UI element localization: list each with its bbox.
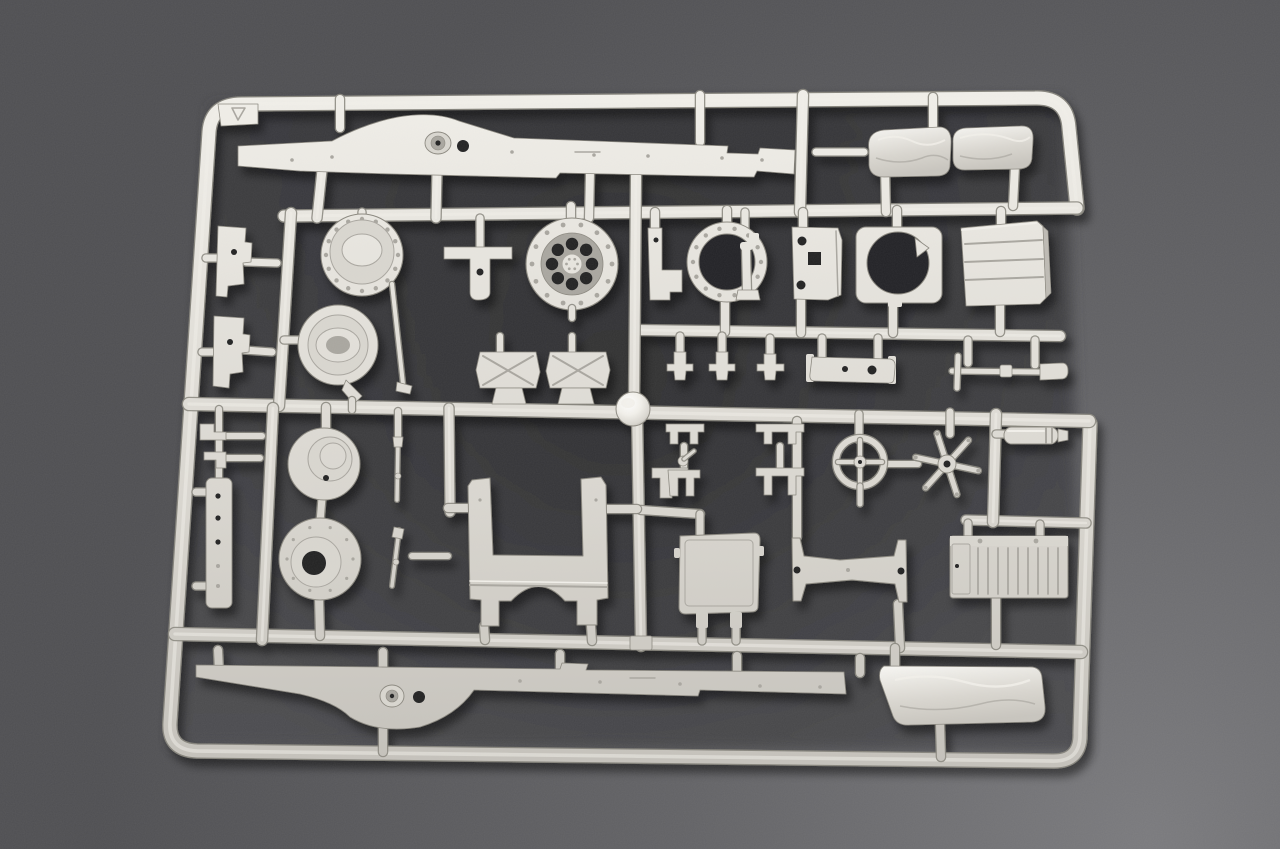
tarp-roll-right: canvas tilt roll (right half) [953,126,1033,170]
junction-pad: runner junction pad [630,636,652,650]
tarp-roll-left: canvas tilt roll (left half) [869,127,952,177]
cylinder-muzzle: ribbed cylinder [1004,427,1068,444]
photo-stage: outer sprue frame runnerupper horizontal… [0,0,1280,849]
dotted-strip: riveted strip [206,478,232,608]
runner-v-inner-left: inner-left vertical runner [449,408,450,512]
runner-v-right-top: right upper vertical runner [800,95,803,212]
recycle-tab: molded tab with triangle mark [218,104,258,126]
holed-bar: mounting bar with holes [806,354,896,384]
runner-h3b-right: lower-middle right runner [966,520,1086,523]
hub-small-b: bearing hub with bore (lower) [279,518,361,600]
square-frame-ring: square mount frame with round opening [856,227,942,307]
runner-h2: upper horizontal runner [284,208,1077,216]
radiator: radiator with vertical ribs [950,536,1068,598]
tarp-bottom: canvas tilt roll (bottom) [880,666,1046,725]
ribbed-box: stowage box with ribs [961,221,1051,306]
holed-plate: bracket plate with holes [792,227,842,300]
sprue-gate-dome: shiny injection gate dome [616,392,650,426]
model-kit-sprue-photo: outer sprue frame runnerupper horizontal… [0,0,1280,849]
hub-small-a: bearing hub (upper) [288,428,360,500]
